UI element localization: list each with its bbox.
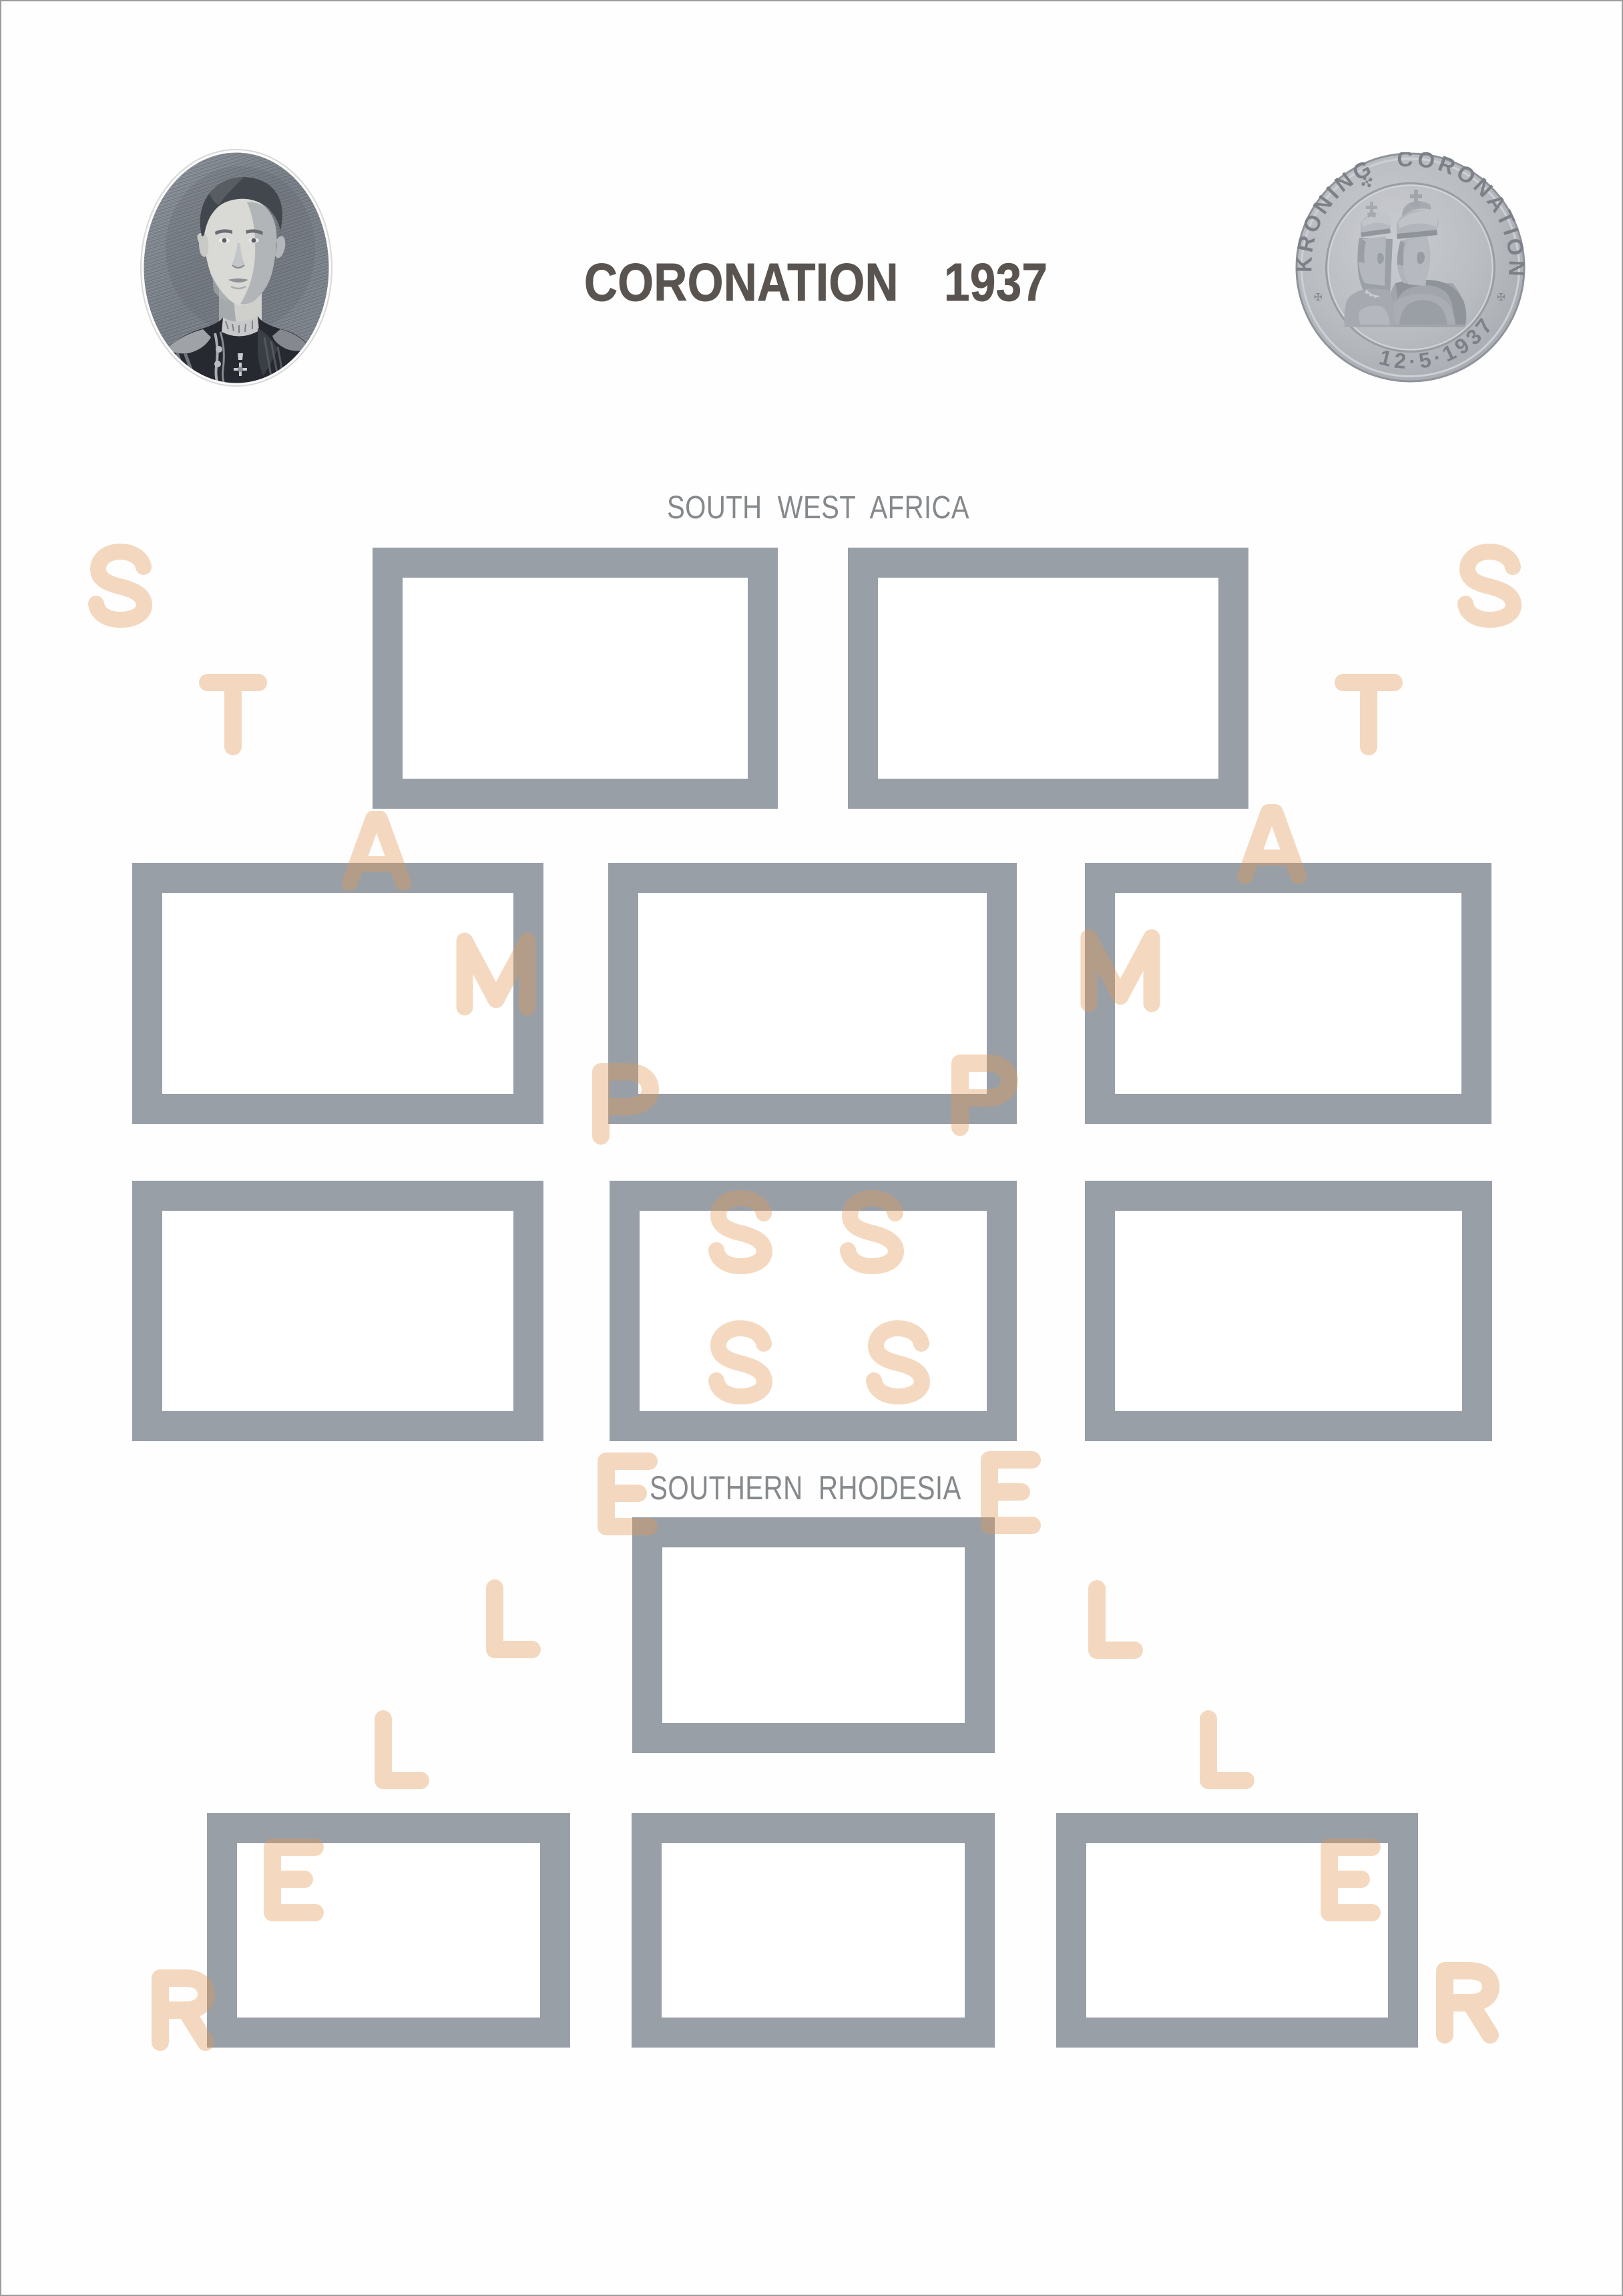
svg-text:✠: ✠: [1497, 292, 1505, 303]
svg-text:✠: ✠: [1314, 292, 1323, 303]
